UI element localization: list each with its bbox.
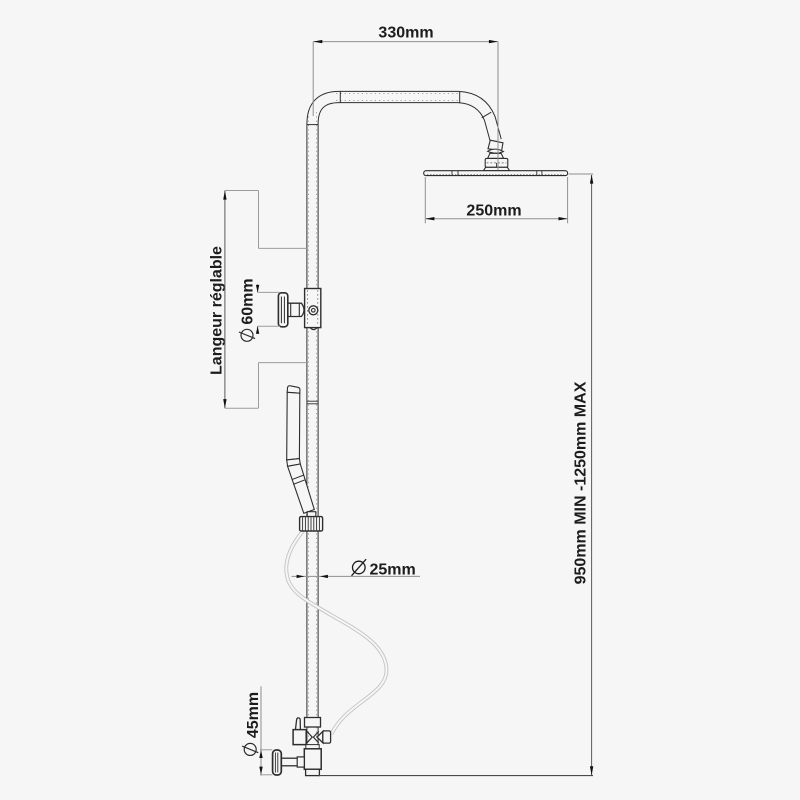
svg-text:60mm: 60mm <box>240 278 257 324</box>
svg-text:45mm: 45mm <box>245 692 262 738</box>
svg-text:250mm: 250mm <box>466 203 521 220</box>
svg-text:950mm MIN -1250mm MAX: 950mm MIN -1250mm MAX <box>573 381 590 584</box>
svg-text:Langeur réglable: Langeur réglable <box>209 246 226 375</box>
svg-text:330mm: 330mm <box>378 25 433 42</box>
